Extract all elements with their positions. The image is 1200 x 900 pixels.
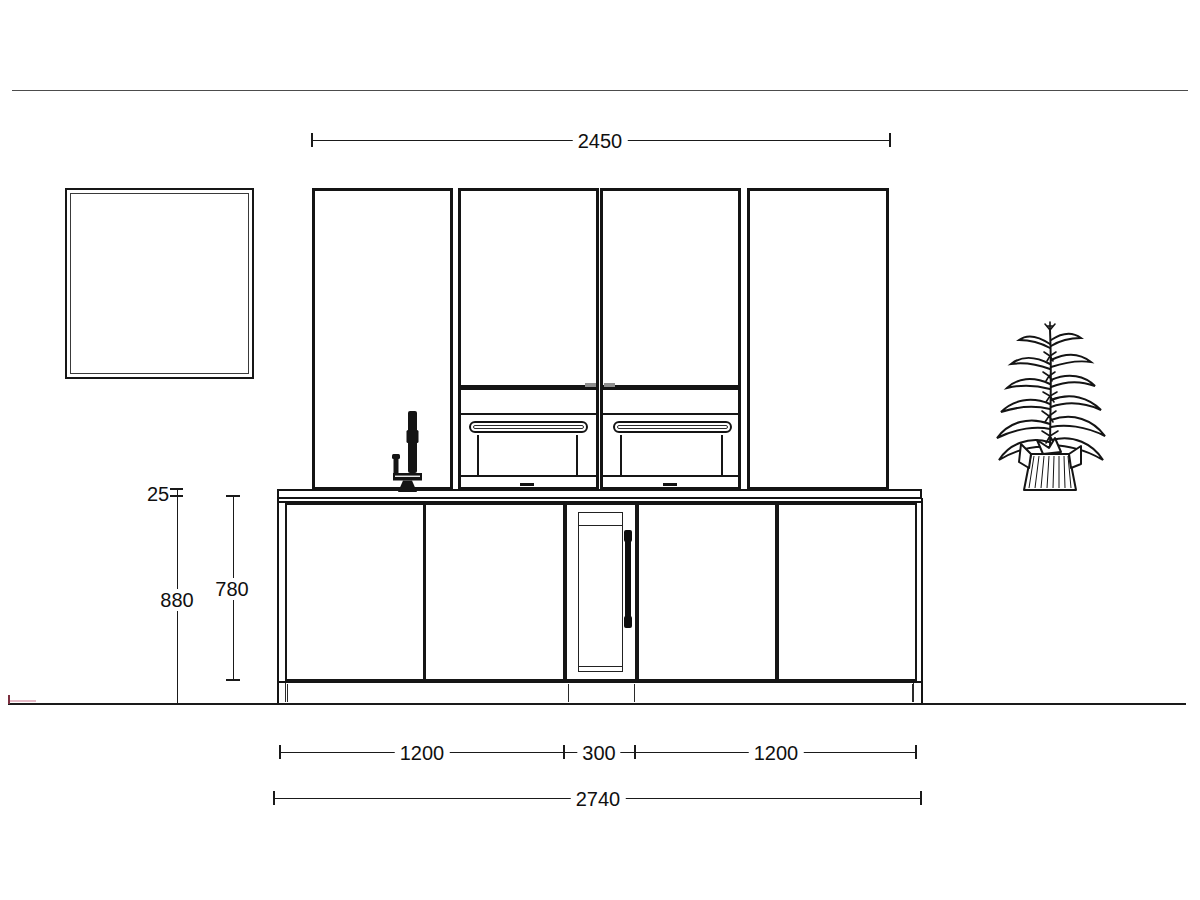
plinth-seam — [568, 684, 569, 702]
dim-tick — [920, 791, 922, 805]
window-frame-inner — [70, 193, 249, 374]
floor-line — [8, 703, 1186, 705]
plinth-seam — [287, 684, 288, 702]
base-narrow-door-handle-cap — [624, 530, 632, 542]
base-narrow-door-rail — [578, 666, 623, 667]
oven-right-handle — [613, 421, 732, 433]
base-door — [285, 503, 425, 681]
dim-label-wall-run: 2450 — [573, 130, 628, 152]
base-doors-bottom-line — [279, 681, 921, 683]
dim-label-base-door-height: 780 — [210, 578, 253, 600]
oven-right-window-stile — [721, 435, 723, 475]
dim-tick — [273, 791, 275, 805]
tall-cabinet-right — [747, 188, 889, 490]
dim-label-countertop-thickness: 25 — [145, 483, 171, 505]
elevation-drawing-canvas: 2450 — [0, 0, 1200, 900]
oven-left-control-band-line — [461, 413, 596, 415]
base-door — [777, 503, 917, 681]
dim-tick — [311, 133, 313, 147]
base-cabinet-run — [277, 498, 923, 704]
oven-right-control-band-line — [603, 413, 738, 415]
base-side-panel-right — [921, 498, 923, 704]
oven-right-vent — [663, 483, 677, 486]
oven-left-vent — [520, 483, 534, 486]
base-narrow-door — [578, 512, 623, 672]
base-narrow-door-handle — [625, 530, 631, 628]
base-narrow-door-handle-cap — [624, 616, 632, 628]
dim-tick — [563, 745, 565, 759]
wall-cupboard-door-left — [458, 188, 599, 388]
dim-tick — [634, 745, 636, 759]
dim-tick — [889, 133, 891, 147]
tall-cabinet-left — [312, 188, 453, 490]
plinth-seam — [912, 684, 913, 702]
wall-top-line — [12, 90, 1188, 91]
dim-tick — [226, 495, 240, 497]
oven-left-window-stile — [477, 435, 479, 475]
countertop — [277, 489, 922, 499]
oven-left — [458, 387, 599, 490]
plant-icon — [993, 316, 1109, 496]
base-side-panel-left — [277, 498, 279, 704]
oven-left-handle — [469, 421, 588, 433]
dim-label-base-center: 300 — [577, 742, 620, 764]
dim-tick — [226, 679, 240, 681]
dim-tick — [915, 745, 917, 759]
faucet-icon — [389, 407, 425, 493]
oven-right-door-bottom-line — [603, 475, 738, 477]
oven-right-window-stile — [620, 435, 622, 475]
dim-tick — [279, 745, 281, 759]
base-narrow-door-rail — [578, 525, 623, 526]
oven-left-window-stile — [576, 435, 578, 475]
plinth-seam — [634, 684, 635, 702]
oven-right — [600, 387, 741, 490]
base-door — [637, 503, 777, 681]
red-marker-smear — [10, 700, 36, 702]
dim-label-countertop-height: 880 — [155, 589, 198, 611]
dim-label-base-total: 2740 — [571, 788, 626, 810]
base-door — [424, 503, 565, 681]
wall-cupboard-door-right — [600, 188, 741, 388]
dim-label-base-right: 1200 — [749, 742, 804, 764]
oven-left-door-bottom-line — [461, 475, 596, 477]
window-frame — [65, 188, 254, 379]
dim-label-base-left: 1200 — [395, 742, 450, 764]
